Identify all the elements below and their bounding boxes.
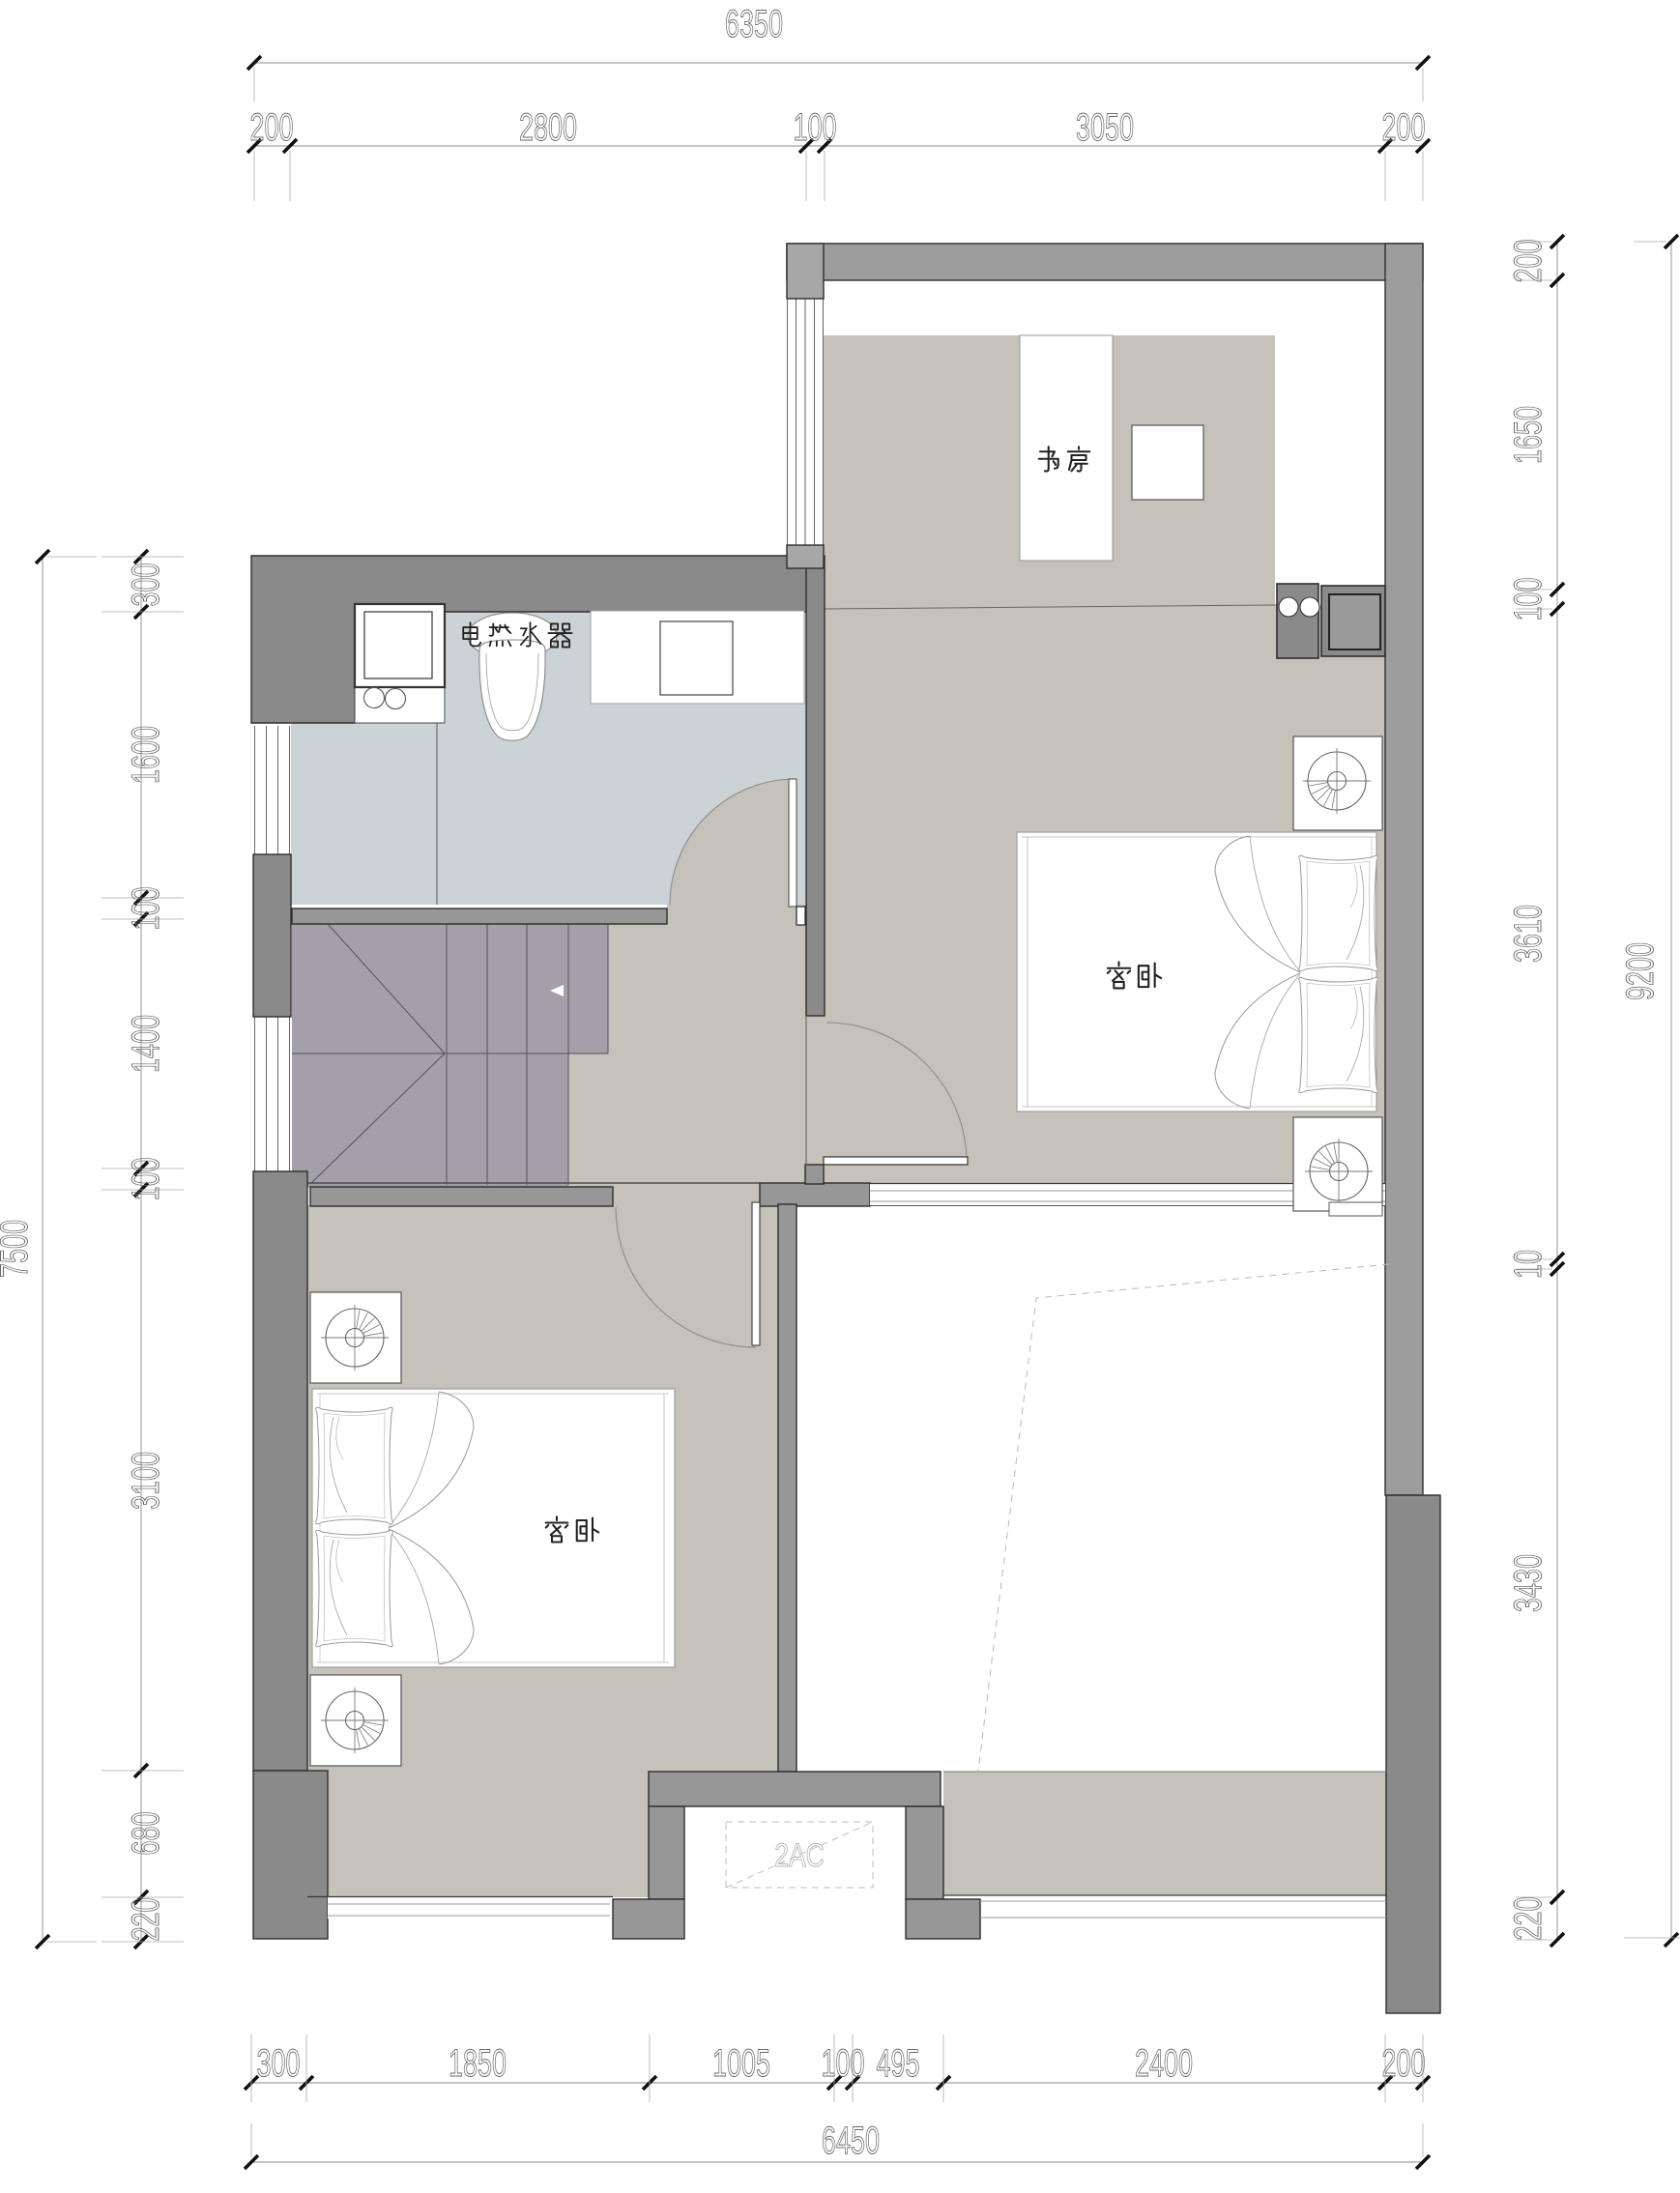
svg-text:300: 300 <box>256 2042 300 2086</box>
svg-text:200: 200 <box>1507 239 1550 282</box>
svg-text:3100: 3100 <box>125 1452 168 1510</box>
svg-text:10: 10 <box>1507 1250 1550 1279</box>
svg-text:1600: 1600 <box>125 726 168 784</box>
svg-text:2AC: 2AC <box>774 1837 825 1874</box>
svg-text:220: 220 <box>1507 1896 1550 1940</box>
svg-text:680: 680 <box>125 1811 168 1855</box>
svg-text:3430: 3430 <box>1507 1554 1550 1612</box>
svg-text:1400: 1400 <box>125 1015 168 1073</box>
svg-text:495: 495 <box>876 2042 919 2086</box>
svg-text:200: 200 <box>1381 2042 1425 2086</box>
svg-text:100: 100 <box>125 1157 168 1200</box>
svg-text:7500: 7500 <box>0 1220 36 1278</box>
svg-text:9200: 9200 <box>1619 942 1663 1000</box>
svg-text:100: 100 <box>1507 577 1550 620</box>
svg-text:1850: 1850 <box>449 2042 507 2086</box>
svg-text:220: 220 <box>125 1897 168 1941</box>
svg-text:200: 200 <box>1381 106 1425 150</box>
svg-text:100: 100 <box>821 2042 864 2086</box>
svg-text:3610: 3610 <box>1507 905 1550 963</box>
svg-text:200: 200 <box>249 106 293 150</box>
svg-text:100: 100 <box>125 886 168 930</box>
svg-text:6350: 6350 <box>725 3 783 46</box>
svg-text:1650: 1650 <box>1507 406 1550 464</box>
svg-text:2400: 2400 <box>1135 2042 1193 2086</box>
svg-text:3050: 3050 <box>1076 106 1134 150</box>
svg-text:300: 300 <box>125 563 168 606</box>
svg-text:6450: 6450 <box>822 2120 880 2163</box>
svg-text:1005: 1005 <box>712 2042 770 2086</box>
svg-text:2800: 2800 <box>519 106 577 150</box>
svg-text:100: 100 <box>793 106 836 150</box>
